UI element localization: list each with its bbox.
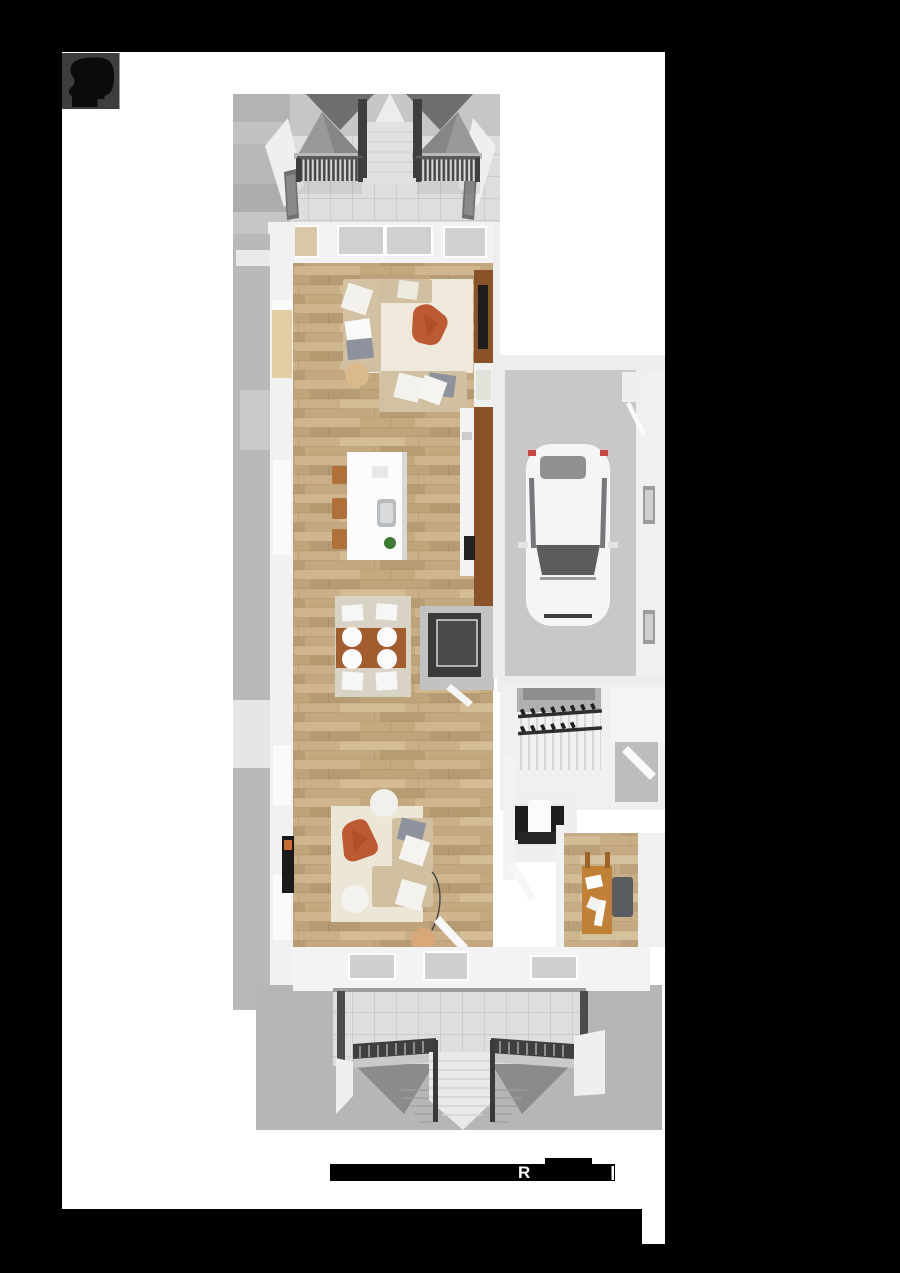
svg-text:R: R	[518, 1163, 530, 1182]
